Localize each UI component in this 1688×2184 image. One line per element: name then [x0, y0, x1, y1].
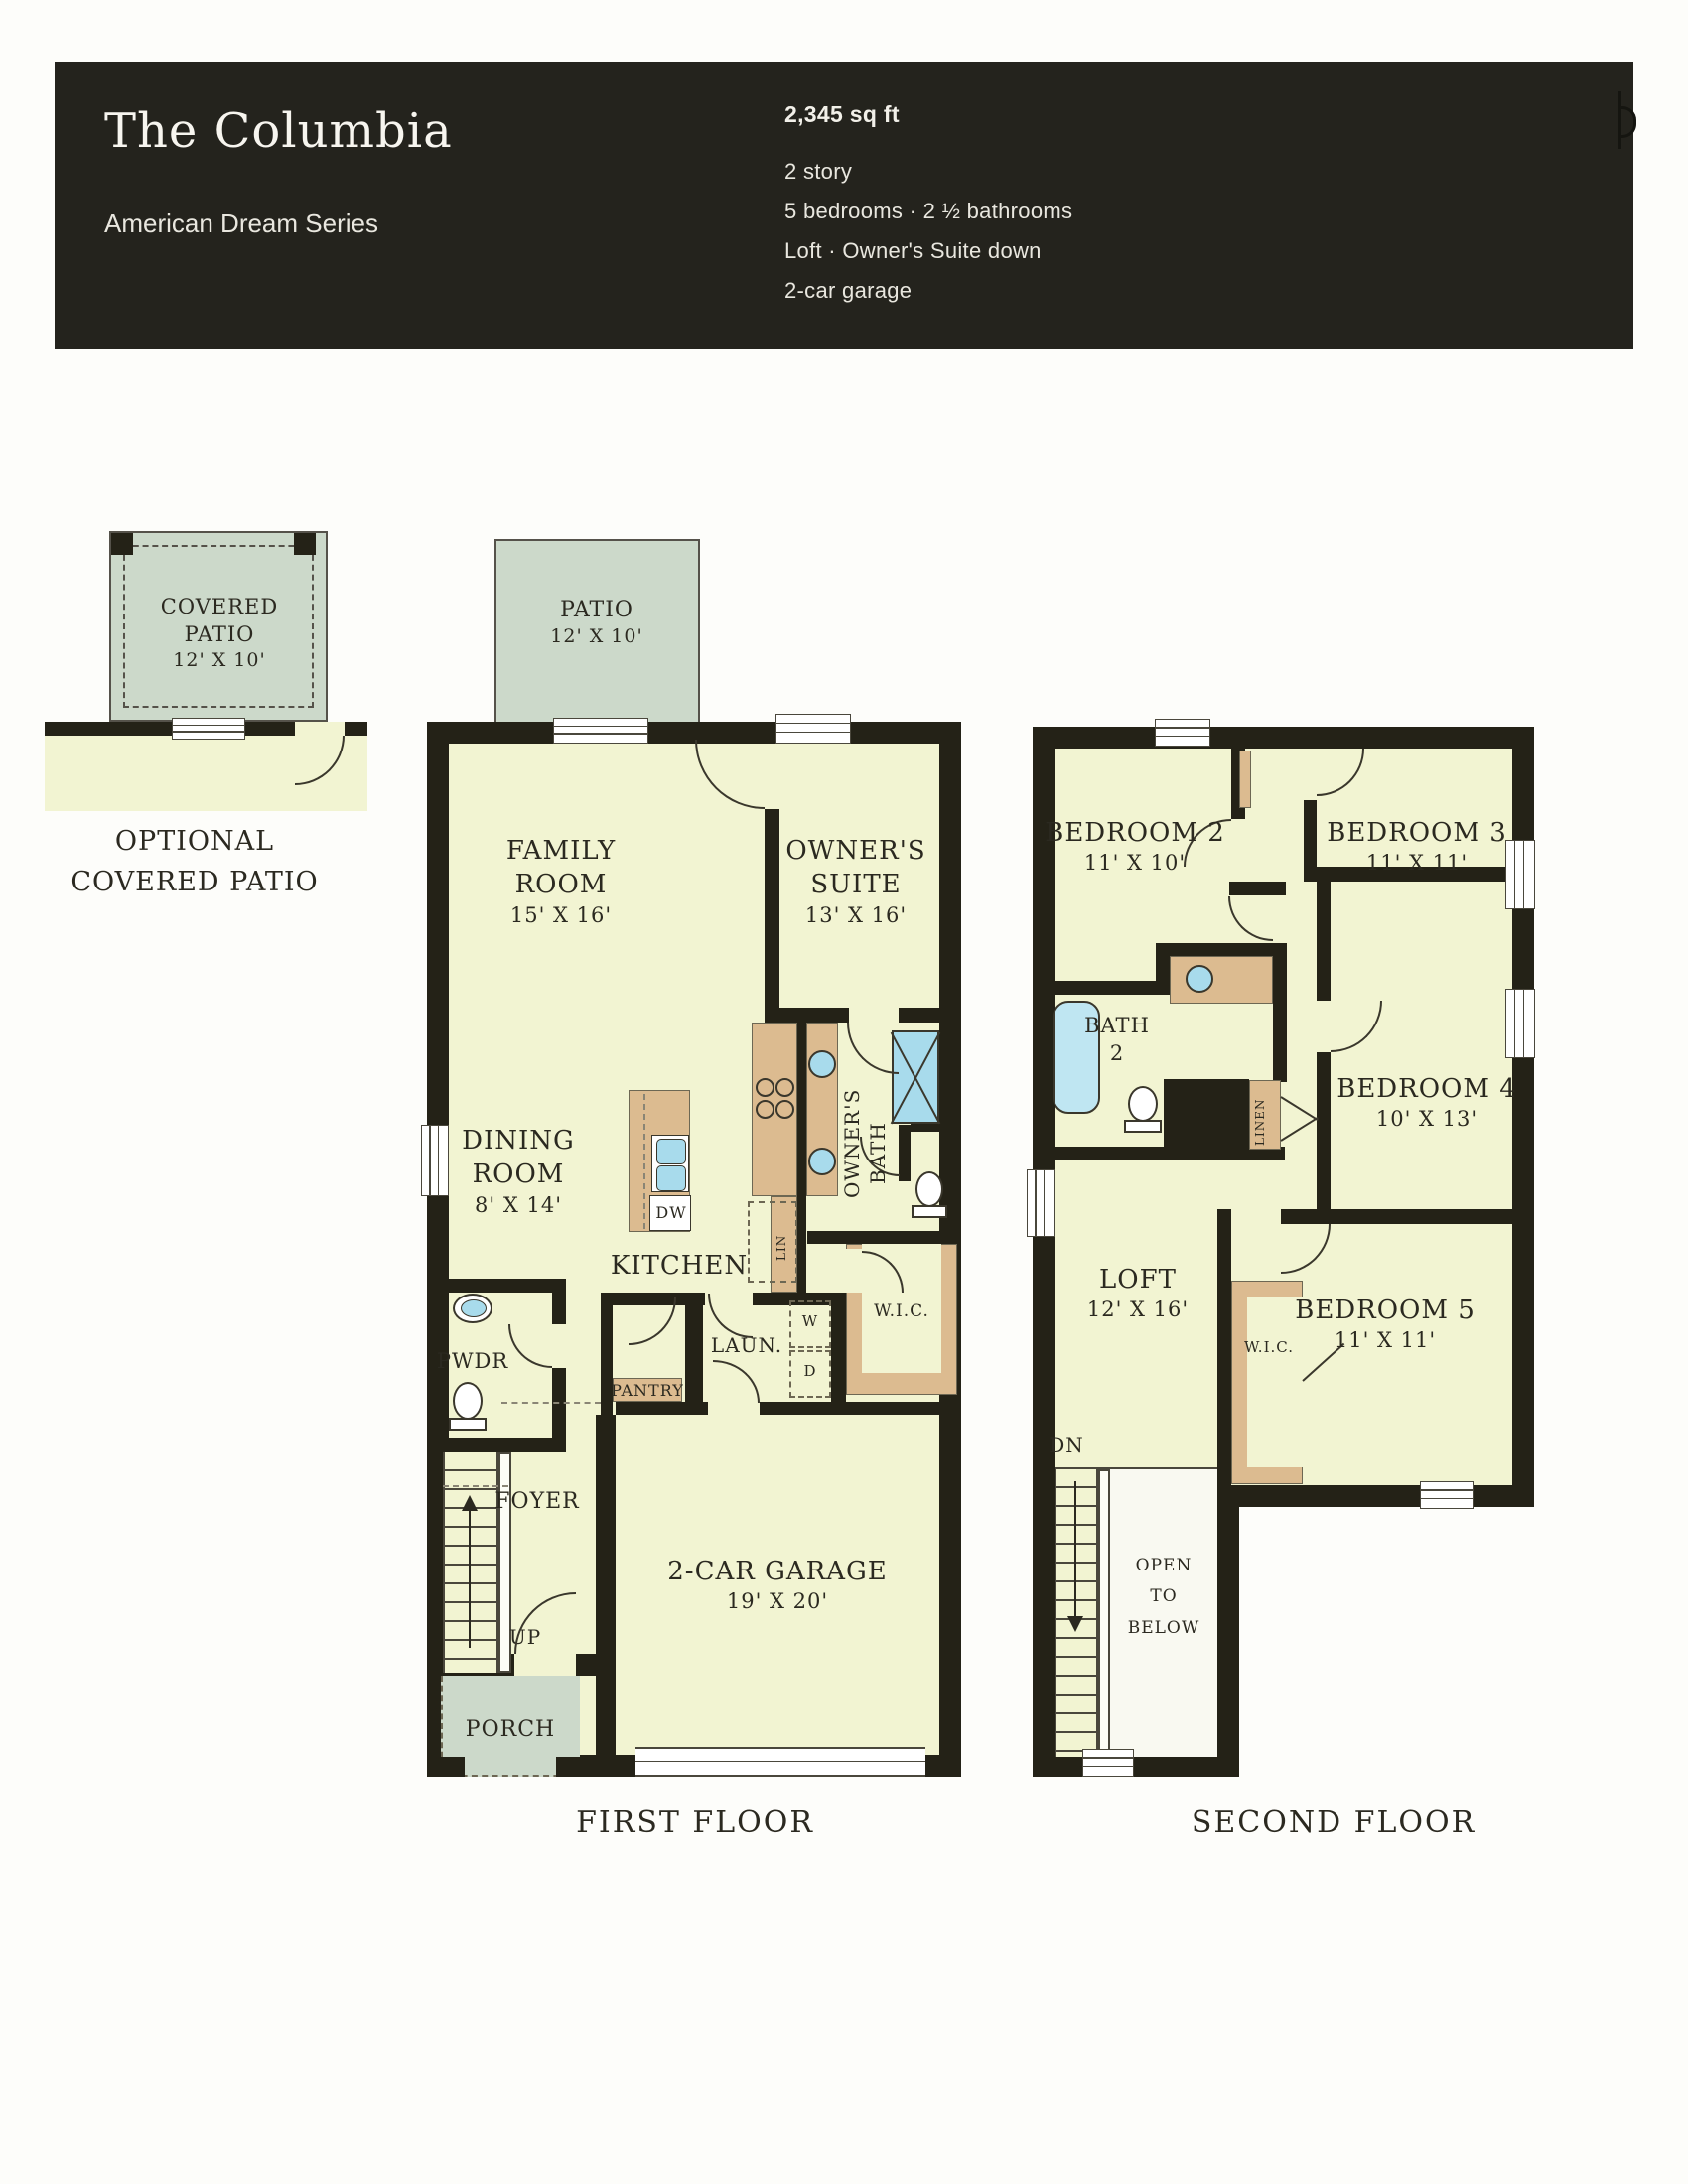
window [1505, 840, 1535, 909]
interior-wall [596, 1415, 616, 1755]
shower-icon [892, 1030, 939, 1124]
cabinet-dashed [748, 1201, 797, 1283]
patio-post [111, 533, 133, 555]
down-arrow-icon [1074, 1481, 1076, 1620]
interior-wall [765, 1008, 849, 1023]
ceiling-break-dashed [501, 1402, 601, 1404]
interior-wall [1217, 1209, 1231, 1485]
first-floor-caption: FIRST FLOOR [576, 1805, 814, 1840]
window [775, 714, 851, 744]
inset-patio-label: COVERED PATIO 12' X 10' [161, 594, 278, 674]
wall [45, 722, 172, 736]
island-dash [643, 1094, 645, 1229]
porch-label: PORCH [466, 1715, 555, 1744]
window [1420, 1481, 1474, 1509]
exterior-wall [1033, 727, 1534, 749]
bath2-label: BATH 2 [1084, 1013, 1150, 1067]
window [421, 1125, 449, 1196]
interior-wall [1304, 800, 1317, 882]
interior-wall [1273, 943, 1287, 1082]
dw-label: DW [655, 1202, 686, 1223]
plan-header: The Columbia American Dream Series 2,345… [55, 62, 1633, 349]
interior-wall [616, 1402, 708, 1415]
exterior-wall [427, 722, 961, 744]
bedroom3-label: BEDROOM 3 11' X 11' [1327, 816, 1507, 878]
patio-label: PATIO 12' X 10' [550, 596, 642, 649]
exterior-wall [1033, 727, 1055, 1777]
page-title: The Columbia [104, 103, 453, 159]
linen-label: LINEN [1254, 1084, 1266, 1146]
registration-mark-icon [1611, 91, 1636, 149]
stove-burner-icon [756, 1100, 774, 1119]
patio-sliding-door [553, 718, 648, 744]
down-arrow-icon [1067, 1616, 1083, 1632]
window [1155, 719, 1210, 747]
spec-garage: 2-car garage [784, 278, 912, 304]
toilet-icon [453, 1382, 483, 1420]
window [1027, 1169, 1055, 1237]
stove-burner-icon [775, 1100, 794, 1119]
interior-wall [760, 1402, 939, 1415]
toilet-icon [912, 1205, 947, 1218]
interior-wall [1156, 943, 1286, 956]
exterior-wall [1033, 1755, 1239, 1777]
family-room-label: FAMILY ROOM 15' X 16' [506, 834, 616, 929]
dn-label: DN [1049, 1433, 1084, 1458]
loft-label: LOFT 12' X 16' [1087, 1263, 1189, 1324]
patio-post [294, 533, 316, 555]
up-arrow-icon [469, 1509, 471, 1648]
toilet-icon [449, 1418, 487, 1431]
interior-wall [1317, 1052, 1331, 1209]
interior-wall [899, 1008, 939, 1023]
interior-wall [1281, 1209, 1512, 1224]
wall [245, 722, 295, 736]
interior-wall [552, 1279, 566, 1324]
sink-bowl-icon [656, 1165, 686, 1191]
interior-wall [441, 1438, 566, 1452]
sink-icon [808, 1050, 836, 1078]
closet-bifold [1239, 751, 1251, 808]
pantry-label: PANTRY [611, 1380, 684, 1401]
owners-suite-label: OWNER'S SUITE 13' X 16' [785, 834, 925, 929]
interior-wall [441, 1279, 566, 1293]
wall [441, 1757, 465, 1777]
toilet-icon [1124, 1120, 1162, 1133]
interior-wall [1317, 882, 1331, 1001]
bedroom2-label: BEDROOM 2 11' X 10' [1045, 816, 1225, 878]
sink-icon [808, 1148, 836, 1175]
kitchen-label: KITCHEN [611, 1249, 748, 1283]
interior-wall [685, 1293, 703, 1415]
interior-wall [576, 1654, 596, 1676]
sink-bowl-icon [656, 1139, 686, 1164]
open-to-below-label: OPEN TO BELOW [1128, 1551, 1200, 1644]
stove-burner-icon [756, 1078, 774, 1097]
bedroom4-label: BEDROOM 4 10' X 13' [1336, 1072, 1517, 1134]
wic-label: W.I.C. [874, 1300, 929, 1322]
garage-door [635, 1747, 925, 1777]
pwdr-label: PWDR [437, 1348, 508, 1376]
interior-wall [831, 1293, 846, 1402]
window [1082, 1749, 1134, 1777]
interior-wall [1047, 981, 1170, 995]
inset-sliding-door [172, 718, 245, 740]
dryer-label: D [803, 1362, 816, 1382]
staircase-down [1055, 1469, 1098, 1757]
garage-label: 2-CAR GARAGE 19' X 20' [667, 1555, 888, 1616]
sqft-value: 2,345 sq ft [784, 101, 900, 128]
spec-loft-suite: Loft · Owner's Suite down [784, 238, 1042, 264]
toilet-icon [915, 1171, 943, 1207]
foyer-label: FOYER [494, 1487, 579, 1516]
sink-icon [1186, 965, 1213, 993]
owners-bath-label: BATH [868, 1050, 888, 1184]
washer-label: W [802, 1312, 818, 1332]
stove-burner-icon [775, 1078, 794, 1097]
interior-wall [899, 1125, 911, 1181]
interior-wall [1229, 882, 1286, 895]
second-floor-caption: SECOND FLOOR [1192, 1805, 1476, 1840]
wic2-label: W.I.C. [1244, 1338, 1294, 1358]
interior-wall [765, 809, 779, 1023]
dining-room-label: DINING ROOM 8' X 14' [462, 1124, 575, 1219]
interior-wall [807, 1231, 939, 1244]
wall [556, 1757, 580, 1777]
up-arrow-icon [462, 1495, 478, 1511]
bedroom5-label: BEDROOM 5 11' X 11' [1295, 1294, 1476, 1355]
interior-wall [797, 1023, 806, 1293]
wic-door-opening [846, 1249, 862, 1293]
exterior-wall [1231, 1485, 1534, 1507]
owners-bath-label: OWNER'S [842, 1034, 862, 1198]
spec-bedrooms-bathrooms: 5 bedrooms · 2 ½ bathrooms [784, 199, 1072, 224]
toilet-icon [1128, 1086, 1158, 1122]
window [1505, 989, 1535, 1058]
series-subtitle: American Dream Series [104, 208, 378, 239]
stair-rail [1098, 1469, 1110, 1757]
inset-caption: OPTIONAL COVERED PATIO [70, 822, 318, 902]
floorplan-brochure-page: The Columbia American Dream Series 2,345… [0, 0, 1688, 2184]
wall-mass [1164, 1079, 1249, 1147]
exterior-wall [1217, 1485, 1239, 1777]
spec-story: 2 story [784, 159, 852, 185]
wall [345, 722, 367, 736]
pwdr-sink-bowl [461, 1299, 487, 1317]
